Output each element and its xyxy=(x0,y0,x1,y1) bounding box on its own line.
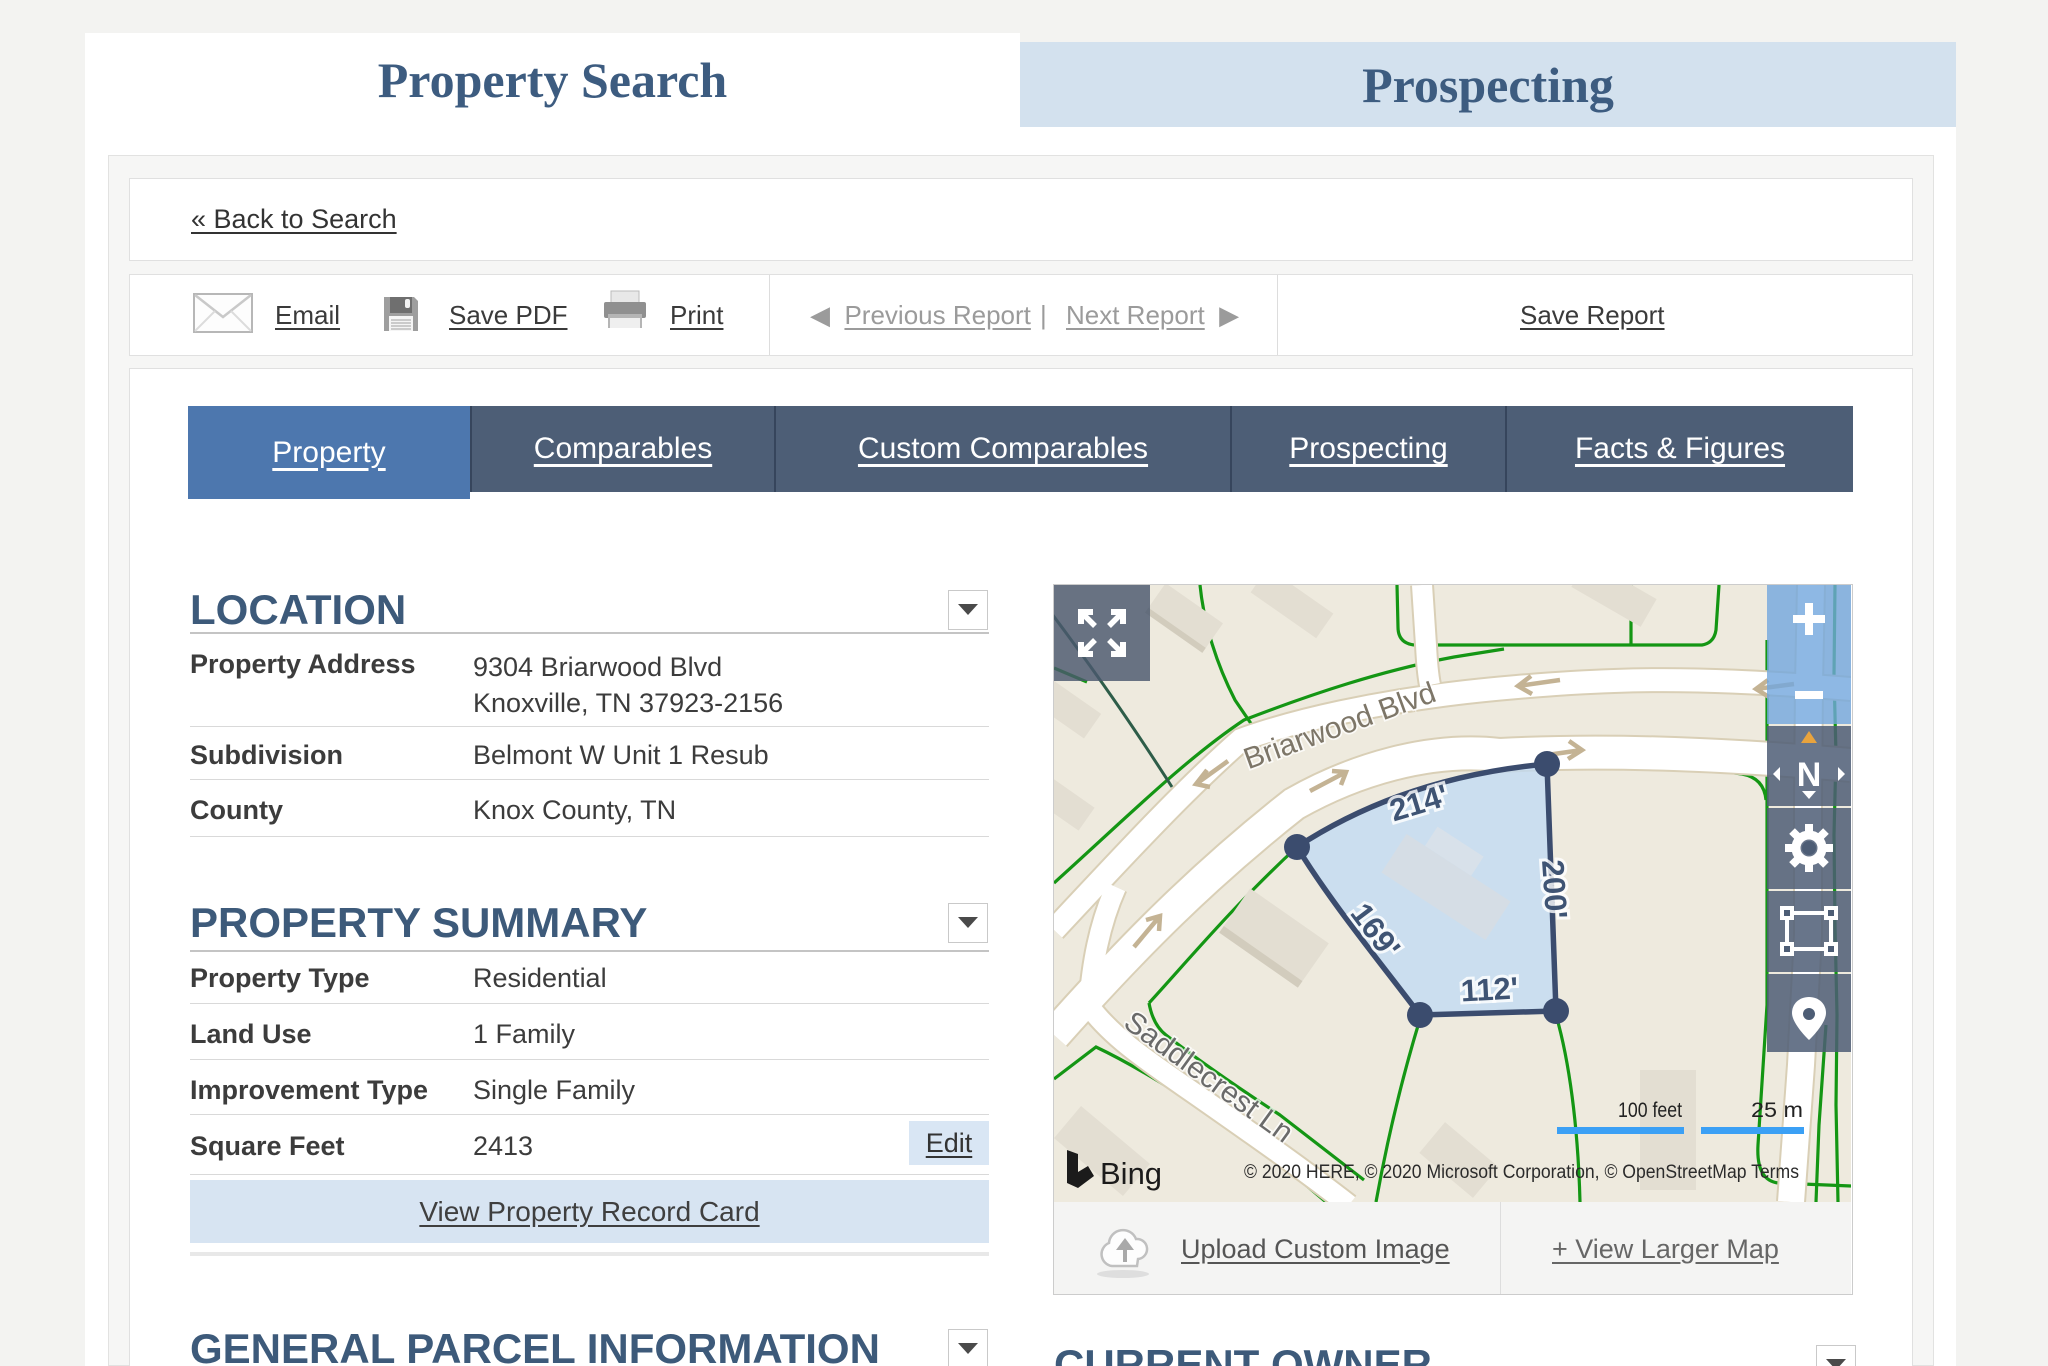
svg-text:25 m: 25 m xyxy=(1751,1099,1803,1122)
svg-text:© 2020 HERE, © 2020 Microsoft: © 2020 HERE, © 2020 Microsoft Corporatio… xyxy=(1244,1162,1799,1183)
svg-text:200': 200' xyxy=(1535,859,1574,920)
svg-text:112': 112' xyxy=(1460,971,1519,1009)
svg-text:Bing: Bing xyxy=(1100,1156,1162,1191)
svg-text:N: N xyxy=(1797,756,1822,794)
svg-text:100 feet: 100 feet xyxy=(1618,1099,1682,1122)
